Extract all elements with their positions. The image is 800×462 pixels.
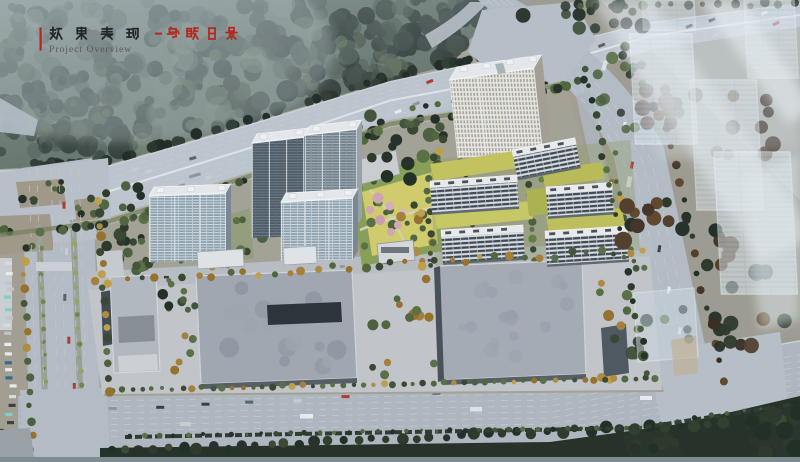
svg-text:Project Overview: Project Overview	[49, 44, 132, 55]
